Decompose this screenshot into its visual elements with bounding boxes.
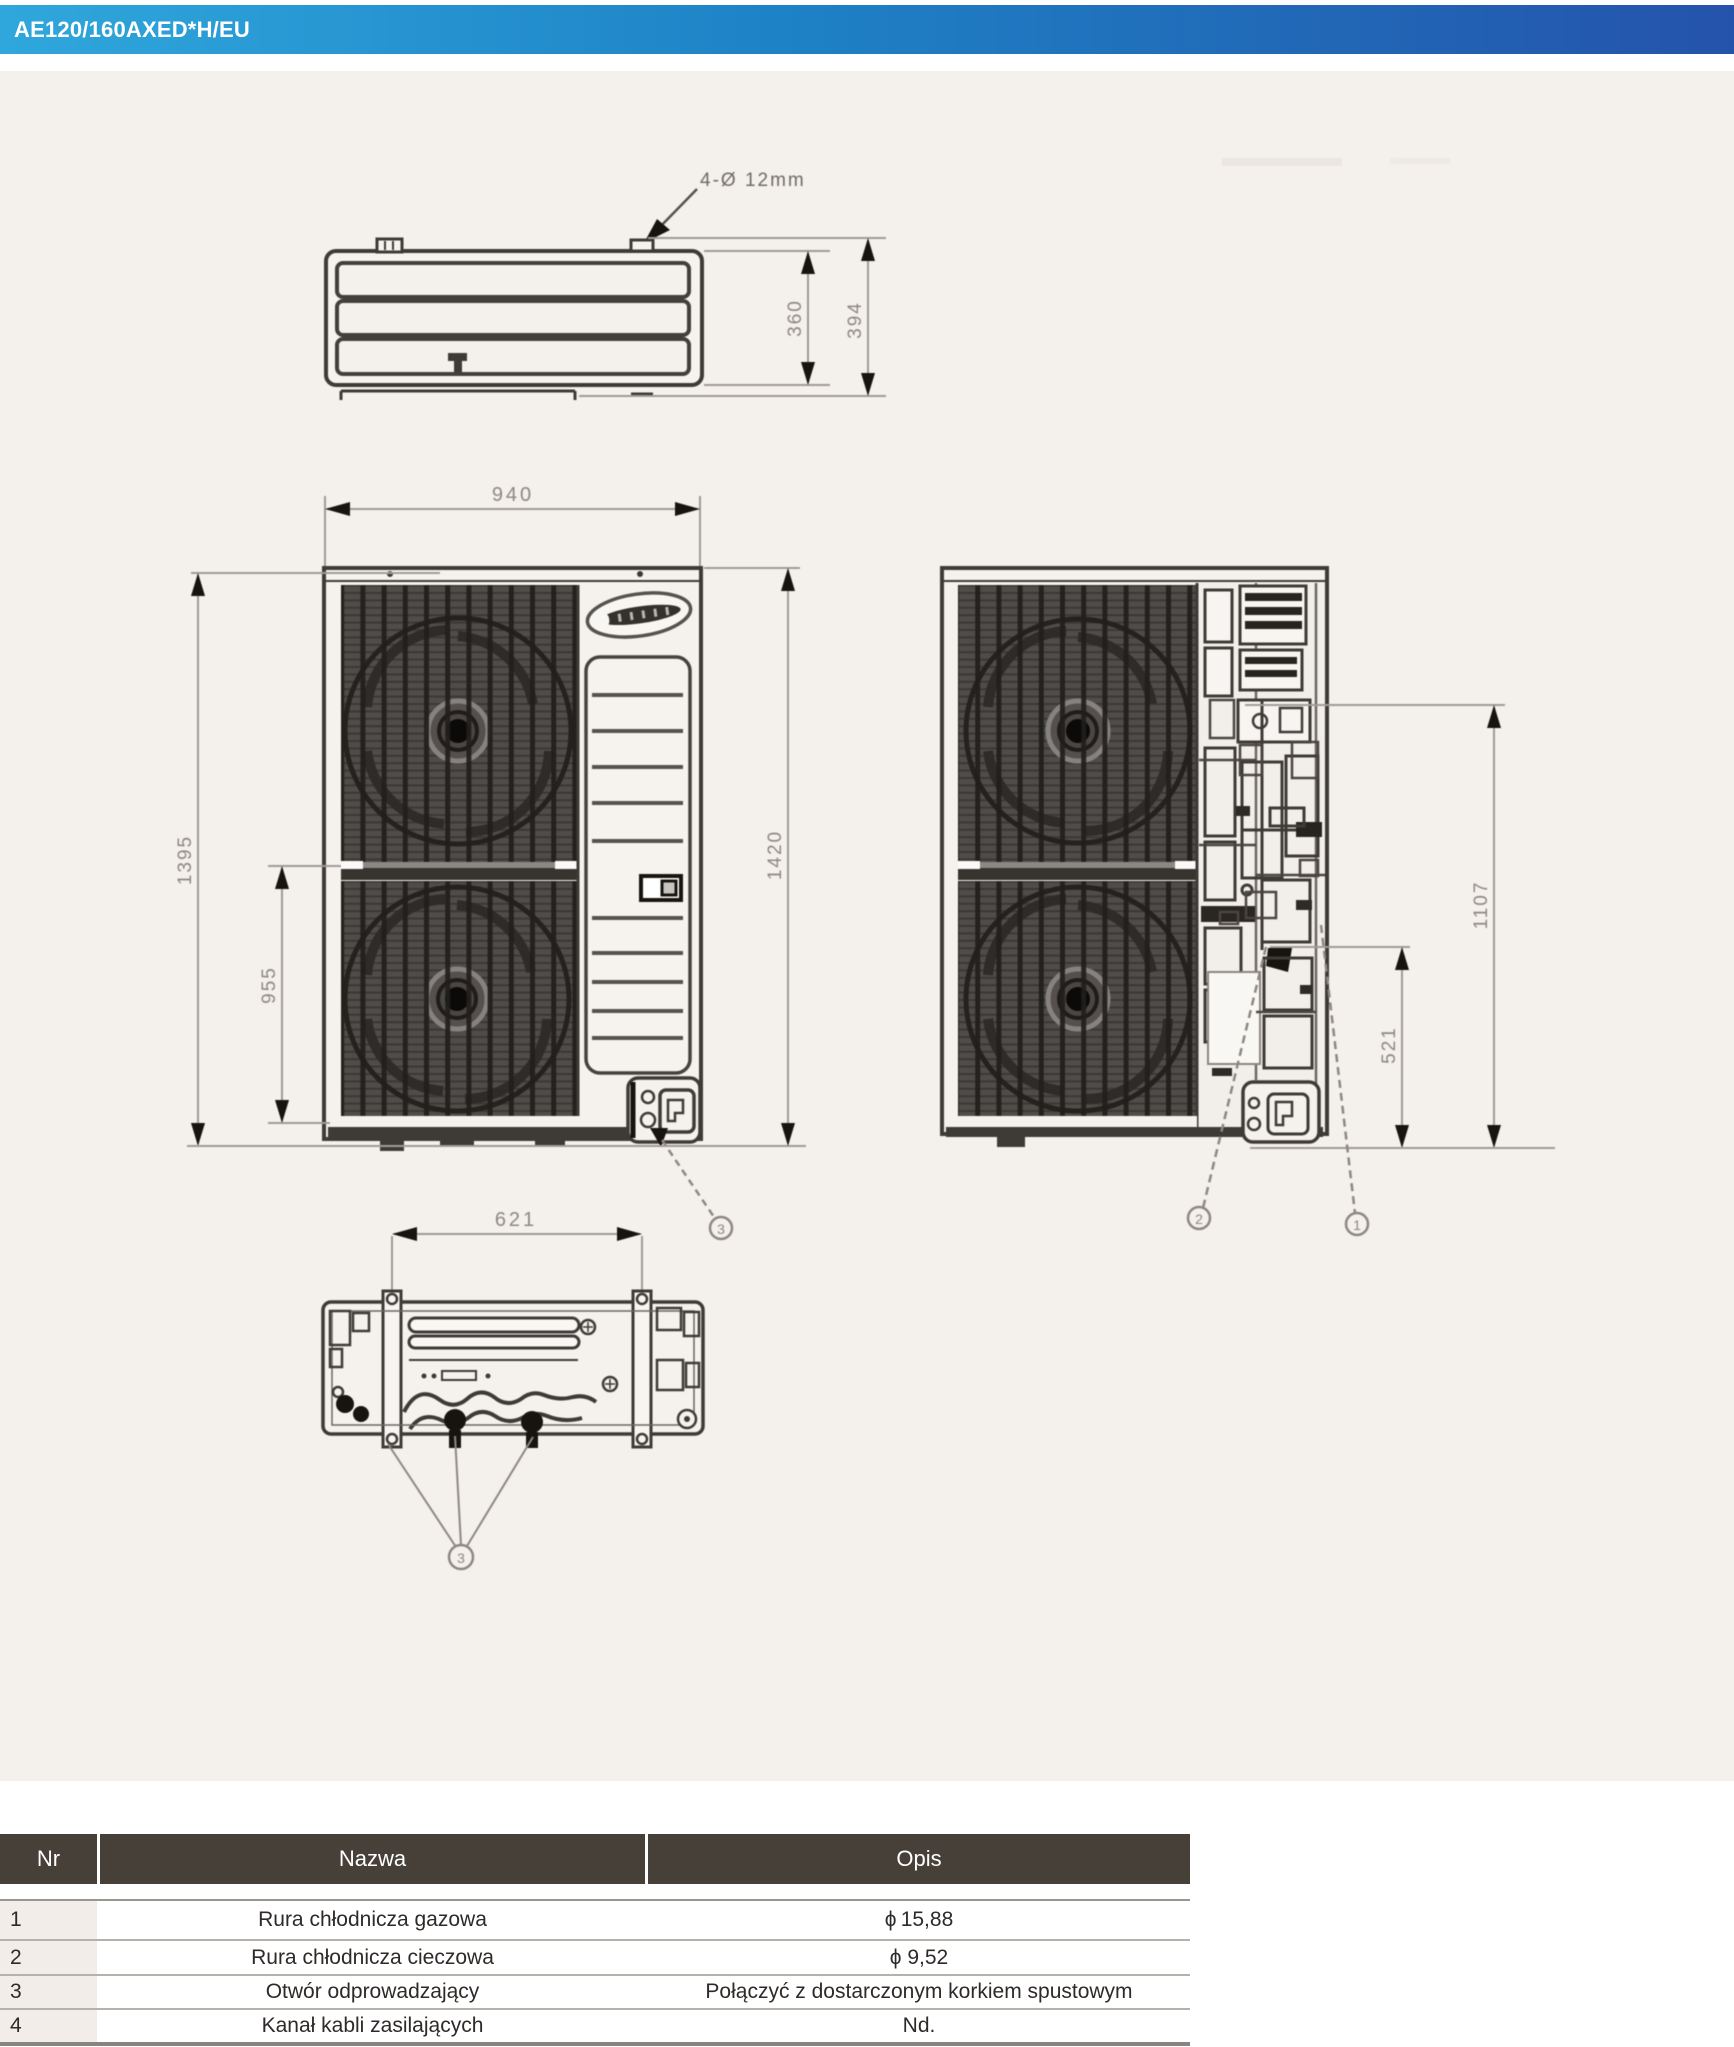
svg-text:521: 521 — [1379, 1026, 1400, 1064]
svg-text:4-Ø 12mm: 4-Ø 12mm — [700, 170, 806, 191]
svg-text:3: 3 — [717, 1221, 725, 1237]
svg-text:1420: 1420 — [765, 830, 786, 880]
svg-text:1395: 1395 — [175, 835, 196, 885]
svg-text:1: 1 — [1353, 1217, 1361, 1233]
svg-text:621: 621 — [495, 1209, 537, 1231]
svg-text:1107: 1107 — [1471, 881, 1492, 930]
svg-text:394: 394 — [845, 301, 866, 339]
svg-text:955: 955 — [259, 966, 280, 1004]
svg-text:360: 360 — [785, 299, 806, 337]
svg-text:3: 3 — [457, 1550, 465, 1566]
svg-text:2: 2 — [1195, 1211, 1203, 1227]
svg-text:940: 940 — [492, 484, 534, 506]
